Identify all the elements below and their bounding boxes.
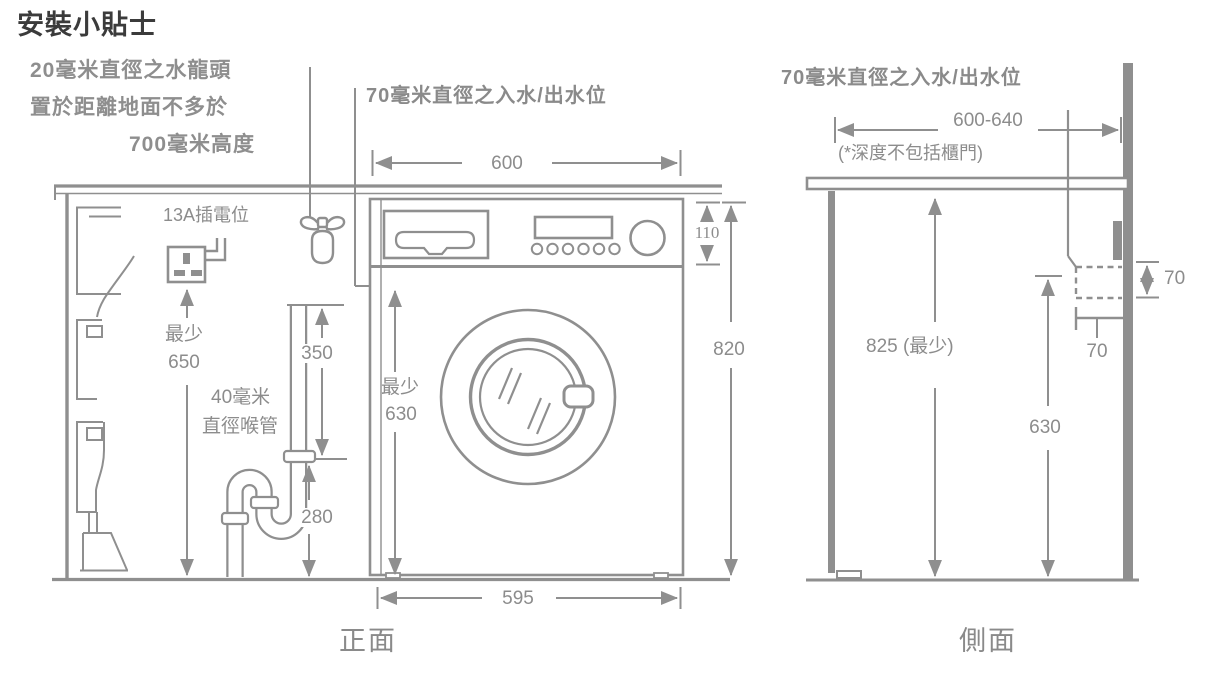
dim-650-text: 650 — [168, 353, 200, 372]
power-socket-icon — [168, 238, 225, 282]
dim-70-depth — [1076, 307, 1123, 338]
dim-600 — [373, 150, 681, 176]
drain-pipe-label-line1: 40毫米 — [211, 388, 270, 407]
basin-profile — [77, 208, 134, 571]
dim-280-text: 280 — [298, 508, 336, 527]
dim-350-text: 350 — [298, 344, 336, 363]
pipe-flange-top — [284, 451, 315, 462]
front-view-caption: 正面 — [339, 628, 397, 655]
dim-595-text: 595 — [502, 589, 534, 608]
wall-pipe-duct — [1113, 221, 1122, 260]
side-view-caption: 側面 — [959, 628, 1017, 655]
side-inlet-outlet-label: 70毫米直徑之入水/出水位 — [781, 68, 1022, 88]
side-cabinet-foot — [837, 571, 861, 578]
side-view-drawing — [806, 63, 1159, 580]
dim-110-text: 110 — [695, 224, 720, 241]
dim-630-side-text: 630 — [1029, 418, 1061, 437]
tap-note-line1: 20毫米直徑之水龍頭 — [30, 60, 231, 81]
machine-foot-right — [654, 573, 668, 578]
tap-note-line2: 置於距離地面不多於 — [30, 97, 228, 118]
outlet-dashed-box — [1076, 267, 1122, 298]
dim-600-640-text: 600-640 — [953, 111, 1023, 130]
dim-70-height-text: 70 — [1164, 269, 1185, 288]
dim-70-height — [1136, 262, 1159, 298]
side-cabinet-wall — [828, 191, 835, 573]
drain-pipe-label-line2: 直徑喉管 — [202, 417, 278, 436]
socket-label: 13A插電位 — [163, 206, 249, 224]
tap-note-line3: 700毫米高度 — [129, 134, 255, 155]
dim-820 — [722, 203, 746, 576]
installation-diagram: 安裝小貼士 20毫米直徑之水龍頭 置於距離地面不多於 700毫米高度 70毫米直… — [0, 0, 1226, 679]
dim-70-depth-text: 70 — [1086, 342, 1107, 361]
side-right-wall — [1123, 63, 1133, 580]
tap-icon — [301, 217, 344, 263]
depth-note: (*深度不包括櫃門) — [838, 144, 983, 162]
dim-630-front-text: 630 — [385, 405, 417, 424]
pipe-flange-left — [222, 513, 248, 524]
door-handle — [564, 386, 593, 407]
dim-600-text: 600 — [491, 154, 523, 173]
dim-820-text: 820 — [713, 340, 745, 359]
pipe-flange-middle — [251, 497, 278, 508]
front-inlet-outlet-label: 70毫米直徑之入水/出水位 — [366, 86, 607, 106]
machine-foot-left — [386, 573, 400, 578]
dim-825-text: 825 (最少) — [866, 337, 954, 356]
dim-630-front-label: 最少 — [381, 378, 419, 397]
side-worktop — [807, 178, 1128, 189]
dim-650-label: 最少 — [165, 325, 203, 344]
page-title: 安裝小貼士 — [17, 12, 157, 39]
